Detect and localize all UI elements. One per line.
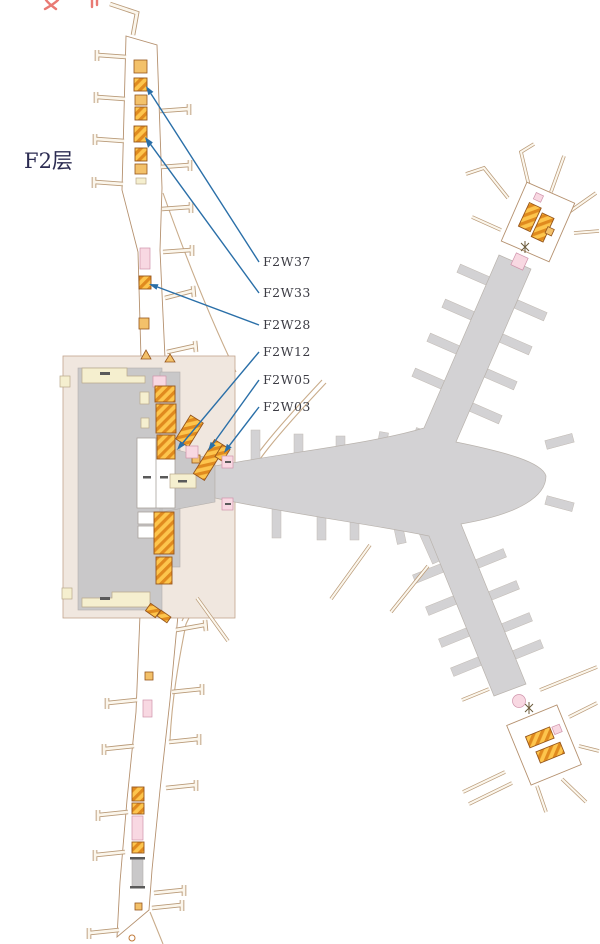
shop-icon bbox=[139, 318, 149, 329]
shop-icon bbox=[136, 178, 146, 184]
gate-stub bbox=[450, 657, 481, 677]
kiosk-icon bbox=[143, 700, 152, 717]
kiosk-mark bbox=[225, 503, 231, 505]
gate-stub bbox=[545, 433, 574, 449]
strip-mark bbox=[100, 597, 110, 600]
gate-label-f2w28: F2W28 bbox=[263, 317, 311, 332]
gate-label-f2w05: F2W05 bbox=[263, 372, 311, 387]
kiosk-icon bbox=[140, 248, 150, 269]
leader-line-f2w33 bbox=[150, 144, 259, 293]
shop-icon bbox=[134, 78, 147, 91]
shop-icon bbox=[154, 512, 174, 554]
kiosk-icon bbox=[132, 816, 143, 840]
kiosk-mark bbox=[225, 461, 231, 463]
shop-icon bbox=[141, 418, 149, 428]
shop-icon bbox=[156, 404, 176, 433]
gate-stub bbox=[427, 333, 460, 354]
gate-stub bbox=[475, 549, 506, 569]
shop-icon bbox=[156, 557, 172, 584]
gate-stub bbox=[514, 300, 547, 321]
pier-junction-marker bbox=[513, 695, 526, 708]
kiosk-icon bbox=[186, 446, 198, 458]
airport-floor-map: F2W37 F2W33 F2W28 F2W12 F2W05 F2W03 F2层 bbox=[0, 0, 600, 944]
gate-stub bbox=[457, 264, 490, 285]
shop-icon bbox=[132, 842, 144, 853]
info-box-mark bbox=[178, 480, 187, 483]
gate-stub bbox=[442, 299, 475, 320]
gate-label-f2w37: F2W37 bbox=[263, 254, 311, 269]
shop-icon bbox=[134, 126, 147, 142]
gate-box bbox=[62, 588, 72, 599]
gate-stub bbox=[499, 334, 532, 355]
gate-stub bbox=[545, 496, 574, 512]
kiosk-icon bbox=[153, 376, 166, 387]
shop-icon bbox=[157, 435, 175, 459]
strip-mark bbox=[100, 372, 110, 375]
asterisk-marker-icon bbox=[525, 702, 533, 714]
truncated-red-text-fragment bbox=[45, 0, 97, 9]
gate-box bbox=[60, 376, 70, 387]
shop-icon bbox=[155, 386, 175, 402]
shop-icon bbox=[132, 787, 144, 801]
gate-stub bbox=[438, 628, 469, 648]
marker-circle bbox=[129, 935, 135, 941]
leader-line-f2w28 bbox=[158, 287, 260, 325]
gate-label-f2w03: F2W03 bbox=[263, 399, 311, 414]
concourse-tail-line bbox=[150, 912, 163, 944]
shop-icon bbox=[135, 903, 142, 910]
shop-icon bbox=[135, 164, 147, 174]
gate-stub bbox=[272, 506, 281, 538]
service-core-cap bbox=[130, 857, 145, 860]
shop-icon bbox=[134, 60, 147, 73]
gate-stub bbox=[251, 430, 260, 462]
shop-icon bbox=[140, 392, 149, 404]
shop-icon bbox=[135, 148, 147, 161]
gate-stub bbox=[425, 596, 456, 616]
gate-stub bbox=[501, 613, 532, 633]
gate-label-f2w12: F2W12 bbox=[263, 344, 311, 359]
shop-icon bbox=[135, 95, 147, 105]
gate-stub bbox=[412, 368, 445, 389]
shop-icon bbox=[132, 803, 144, 814]
leader-line-f2w37 bbox=[151, 94, 259, 262]
gate-stub bbox=[469, 403, 502, 424]
service-core bbox=[132, 858, 143, 888]
gate-stub bbox=[512, 640, 543, 660]
gate-stub bbox=[488, 581, 519, 601]
shop-icon bbox=[135, 107, 147, 120]
escalator-mark bbox=[160, 476, 168, 479]
escalator-mark bbox=[143, 476, 151, 479]
service-core-cap bbox=[130, 886, 145, 889]
floor-plan-svg: F2W37 F2W33 F2W28 F2W12 F2W05 F2W03 F2层 bbox=[0, 0, 600, 944]
floor-title: F2层 bbox=[24, 149, 73, 173]
shop-icon bbox=[145, 672, 153, 680]
shop-icon bbox=[139, 276, 151, 289]
gate-stub bbox=[484, 369, 517, 390]
gate-label-f2w33: F2W33 bbox=[263, 285, 311, 300]
